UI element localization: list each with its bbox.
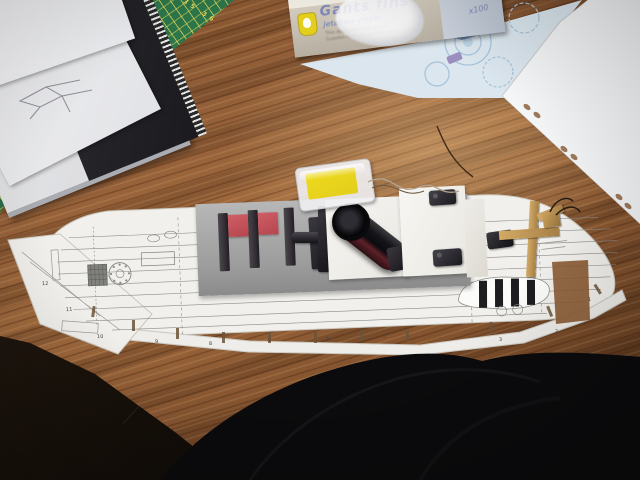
- deck-fitting: [429, 189, 457, 206]
- tab-number: 1: [588, 297, 591, 303]
- thumbs-up-logo: [297, 12, 319, 37]
- punch-holes: [522, 103, 632, 211]
- red-hatch: [228, 214, 249, 237]
- fitting-pip: [437, 252, 442, 257]
- tab-number: 2: [555, 329, 558, 335]
- tab-number: 7: [268, 338, 271, 344]
- loose-wire: [437, 126, 473, 177]
- crane-mast: [526, 201, 539, 277]
- tab-number: 5: [383, 334, 386, 340]
- tab-number: 11: [66, 307, 73, 313]
- tab-number: 9: [155, 339, 158, 345]
- superstructure-panel: [463, 199, 488, 278]
- plan-bow-details: [86, 231, 178, 286]
- thumb-glyph: [302, 17, 311, 28]
- crane-block: [542, 213, 561, 228]
- deck-fitting: [432, 248, 462, 267]
- gun-muzzle: [332, 203, 370, 241]
- floor-reflection-line: [57, 297, 253, 421]
- tab-slots: [91, 284, 602, 343]
- black-fabric: [160, 353, 640, 480]
- small-gun-barrel: [291, 232, 321, 243]
- tab-number: 12: [42, 281, 49, 287]
- tab-number: 6: [326, 336, 329, 342]
- tab-number: 3: [499, 337, 502, 343]
- red-hatch: [258, 212, 279, 235]
- fabric-fold: [420, 398, 560, 480]
- purple-clip: [446, 51, 463, 64]
- cut-notch: [552, 260, 590, 324]
- fabric-fold: [250, 370, 540, 480]
- tab-number: 8: [209, 341, 212, 347]
- floor-reflection-line: [123, 297, 237, 424]
- perforated-sheet: [502, 0, 640, 226]
- tab-number: 10: [97, 334, 104, 340]
- photo-workbench-scene: 34 35 36: [0, 0, 640, 480]
- fitting-pip: [433, 193, 438, 198]
